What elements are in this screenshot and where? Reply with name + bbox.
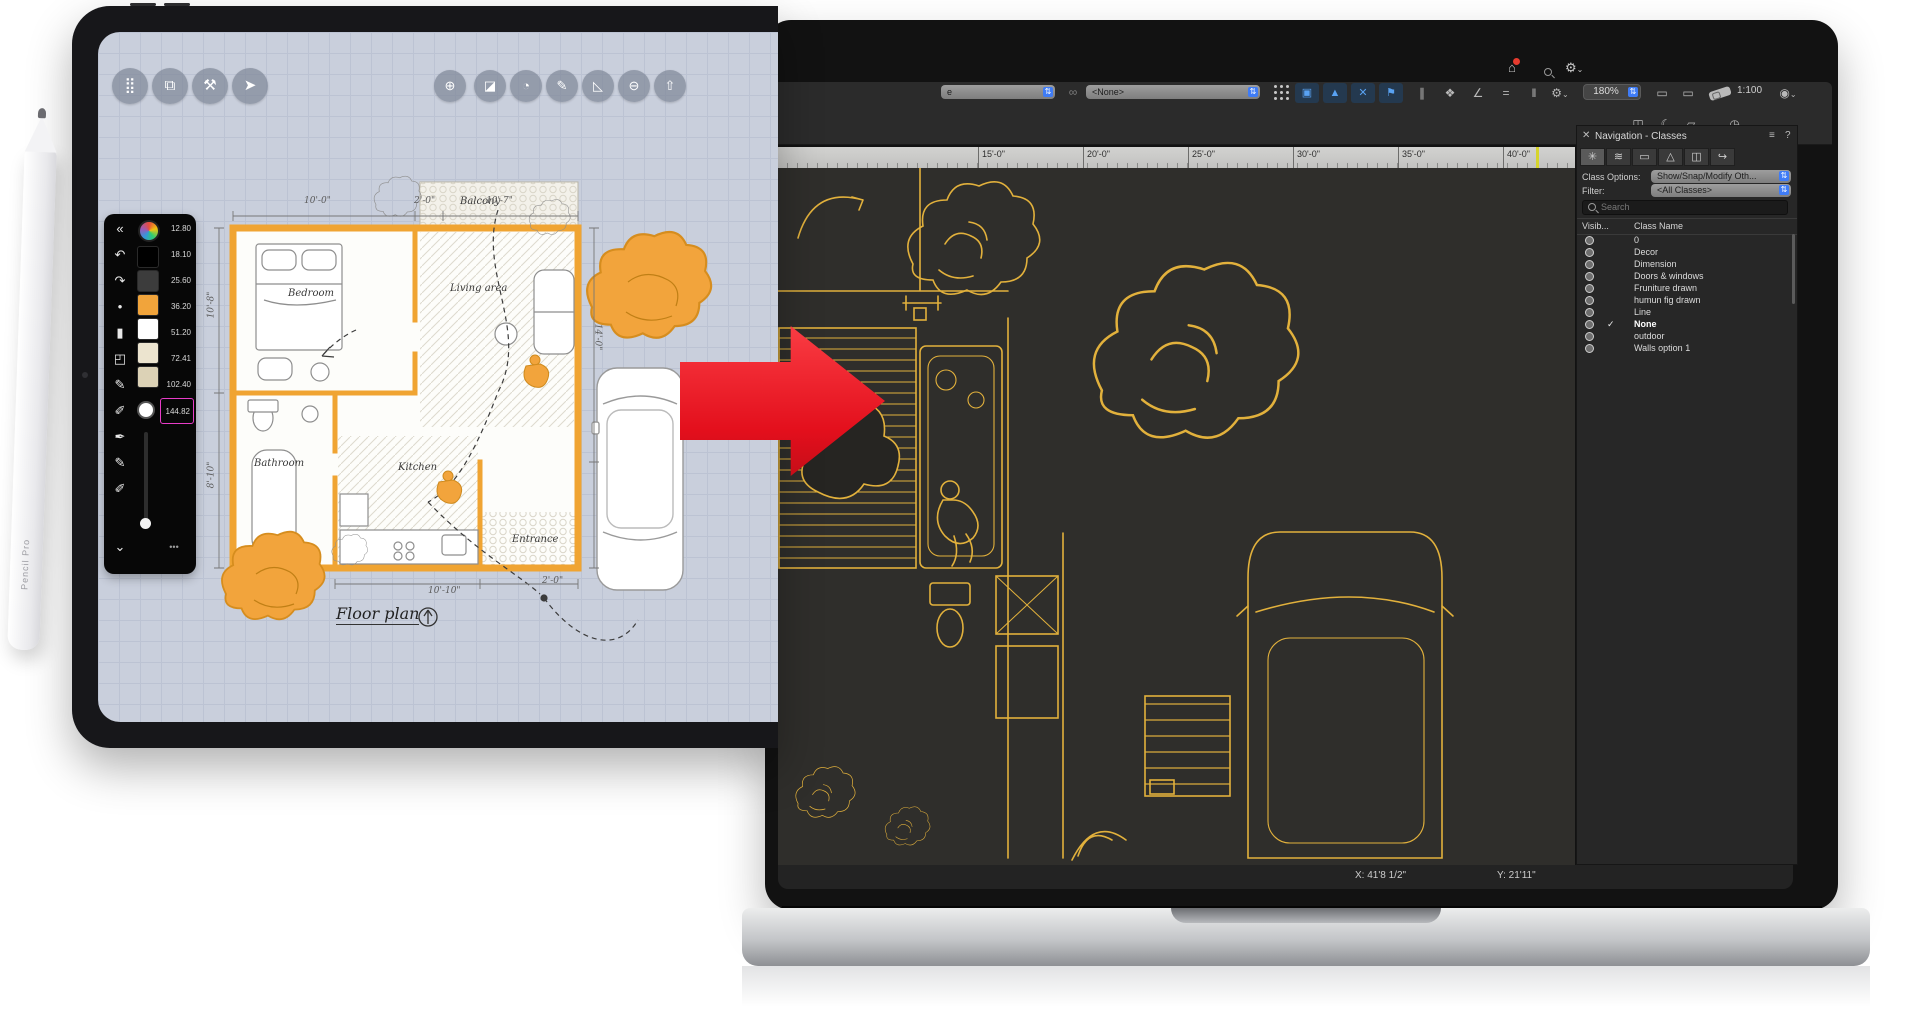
stepper-icon[interactable]: ⇅ xyxy=(1248,87,1258,97)
more-icon[interactable]: ••• xyxy=(160,534,188,560)
size-preset[interactable]: 25.60 xyxy=(160,268,194,294)
stepper-icon[interactable]: ⇅ xyxy=(1043,87,1053,97)
swatch-grey[interactable] xyxy=(137,270,159,292)
filter-label: Filter: xyxy=(1582,186,1605,196)
cad-floorplan-drawing xyxy=(778,168,1575,865)
class-row[interactable]: outdoor xyxy=(1577,330,1797,342)
class-row[interactable]: Walls option 1 xyxy=(1577,342,1797,354)
class-row[interactable]: Decor xyxy=(1577,246,1797,258)
floorplan-sketch xyxy=(98,32,778,722)
panel-menu-icon[interactable]: ≡ xyxy=(1769,130,1775,142)
active-color-indicator[interactable] xyxy=(139,403,153,417)
class-options-dropdown[interactable]: Show/Snap/Modify Oth...⇅ xyxy=(1651,170,1791,183)
visibility-dot-icon[interactable] xyxy=(1585,320,1594,329)
ipad-device: ⣿ ⧉ ⚒ ➤ ⊕ ◪ ◔ ✎ ◺ ⊖ ⇧ « ↶ ↷ • ▮ ◰ ✎ ✐ xyxy=(72,6,778,748)
class-row[interactable]: Doors & windows xyxy=(1577,270,1797,282)
search-placeholder: Search xyxy=(1601,202,1630,212)
close-icon[interactable]: ✕ xyxy=(1582,130,1590,142)
tab-classes[interactable]: ✳ xyxy=(1580,148,1605,166)
search-icon[interactable] xyxy=(1539,62,1547,78)
tab-references[interactable]: ↪ xyxy=(1710,148,1735,166)
airbrush-tool[interactable]: ✐ xyxy=(106,476,134,502)
class-row-active[interactable]: ✓None xyxy=(1577,318,1797,330)
visibility-dot-icon[interactable] xyxy=(1585,344,1594,353)
size-preset-active[interactable]: 144.82 xyxy=(160,398,194,424)
drawing-scale-value[interactable]: 1:100 xyxy=(1737,85,1762,96)
cursor-x-coordinate: X: 41'8 1/2" xyxy=(1355,870,1406,881)
swatch-beige[interactable] xyxy=(137,366,159,388)
macbook-reflection xyxy=(742,966,1870,1011)
tools-button[interactable]: ⚒ xyxy=(192,68,228,104)
visibility-dot-icon[interactable] xyxy=(1585,284,1594,293)
swatch-white[interactable] xyxy=(137,318,159,340)
tool-palette: « ↶ ↷ • ▮ ◰ ✎ ✐ ✒ ✎ ✐ ⌄ xyxy=(104,214,196,574)
front-camera xyxy=(82,372,88,378)
tab-viewports[interactable]: △ xyxy=(1658,148,1683,166)
angle-snap-icon[interactable]: ∠ xyxy=(1467,83,1489,103)
color-wheel-icon[interactable] xyxy=(138,220,160,242)
help-icon[interactable]: ? xyxy=(1785,130,1791,142)
swatch-cream[interactable] xyxy=(137,342,159,364)
marker-tool[interactable]: ✎ xyxy=(106,450,134,476)
class-list: 0 Decor Dimension Doors & windows Frunit… xyxy=(1577,234,1797,354)
dimension-label: 2'-0" xyxy=(414,196,435,206)
eraser-tool[interactable]: ◰ xyxy=(106,346,134,372)
macbook-lid-notch xyxy=(1171,908,1441,923)
attribute-dropdown[interactable]: e⇅ xyxy=(941,85,1055,99)
notification-badge xyxy=(1513,58,1520,65)
size-preset[interactable]: 72.41 xyxy=(160,346,194,372)
swatch-orange[interactable] xyxy=(137,294,159,316)
room-label: Living area xyxy=(450,283,507,294)
ink-tool[interactable]: ✒ xyxy=(106,424,134,450)
cad-drawing-area[interactable] xyxy=(778,168,1575,865)
room-label: Bathroom xyxy=(254,458,304,469)
triangle-ruler-button[interactable]: ◺ xyxy=(582,70,614,102)
dimension-label: 10'-8" xyxy=(206,292,216,319)
pen-tool[interactable]: ✎ xyxy=(106,372,134,398)
snap-to-intersection-button[interactable]: ✕ xyxy=(1351,83,1375,103)
dash-style-icon[interactable]: = xyxy=(1495,83,1517,103)
duplicate-button[interactable]: ⧉ xyxy=(152,68,188,104)
class-row[interactable]: 0 xyxy=(1577,234,1797,246)
visibility-dot-icon[interactable] xyxy=(1585,296,1594,305)
visibility-dot-icon[interactable] xyxy=(1585,308,1594,317)
tab-saved-views[interactable]: ◫ xyxy=(1684,148,1709,166)
snap-to-edge-button[interactable]: ⚑ xyxy=(1379,83,1403,103)
size-preset[interactable]: 12.80 xyxy=(160,216,194,242)
mac-menubar: ⌂ ⚙⌄ xyxy=(765,58,1838,82)
dimension-label: 14'-0" xyxy=(592,324,602,351)
class-row[interactable]: Fruniture drawn xyxy=(1577,282,1797,294)
precision-button[interactable]: ⊕ xyxy=(434,70,466,102)
mapping-icon[interactable]: ∞ xyxy=(1062,82,1084,102)
visibility-dot-icon[interactable] xyxy=(1585,260,1594,269)
class-row[interactable]: Dimension xyxy=(1577,258,1797,270)
size-preset[interactable]: 102.40 xyxy=(160,372,194,398)
mask-button[interactable]: ◪ xyxy=(474,70,506,102)
status-bar: X: 41'8 1/2" Y: 21'11" xyxy=(778,865,1793,889)
share-button[interactable]: ⇧ xyxy=(654,70,686,102)
size-preset[interactable]: 51.20 xyxy=(160,320,194,346)
size-preset[interactable]: 36.20 xyxy=(160,294,194,320)
dot-tool[interactable]: • xyxy=(106,294,134,320)
pen-button[interactable]: ✎ xyxy=(546,70,578,102)
redo-button[interactable]: ↷ xyxy=(106,268,134,294)
class-row[interactable]: humun fig drawn xyxy=(1577,294,1797,306)
snap-to-object-button[interactable]: ▣ xyxy=(1295,83,1319,103)
dimension-label: 10'-0" xyxy=(304,196,331,206)
sketch-app-screen[interactable]: ⣿ ⧉ ⚒ ➤ ⊕ ◪ ◔ ✎ ◺ ⊖ ⇧ « ↶ ↷ • ▮ ◰ ✎ ✐ xyxy=(98,32,778,722)
navigation-classes-panel: ✕ Navigation - Classes ≡ ? ✳ ≋ ▭ △ ◫ ↪ C… xyxy=(1576,125,1798,865)
none-dropdown[interactable]: <None>⇅ xyxy=(1086,85,1260,99)
horizontal-ruler: 15'-0" 20'-0" 25'-0" 30'-0" 35'-0" 40'-0… xyxy=(778,147,1575,169)
visibility-dot-icon[interactable] xyxy=(1585,332,1594,341)
gear-icon[interactable]: ⚙⌄ xyxy=(1565,60,1583,78)
volume-button xyxy=(130,3,156,6)
pencil-label: Pencil Pro xyxy=(19,539,31,590)
cursor-y-coordinate: Y: 21'11" xyxy=(1497,870,1536,881)
dimension-label: 10'-7" xyxy=(486,196,513,206)
filter-dropdown[interactable]: <All Classes>⇅ xyxy=(1651,184,1791,197)
swatch-black[interactable] xyxy=(137,246,159,268)
panel-title: Navigation - Classes xyxy=(1595,131,1687,142)
fit-objects-icon[interactable]: ▭ xyxy=(1677,83,1699,103)
dimension-label: 8'-10" xyxy=(206,462,216,489)
canvas-grid-button[interactable]: ⣿ xyxy=(112,68,148,104)
macbook-screen: ⌂ ⚙⌄ e⇅ ∞ <None>⇅ ▣ ▲ ✕ ⚑ ∥ ❖ ∠ = ‖ ⚙⌄ xyxy=(765,20,1838,910)
visibility-dot-icon[interactable] xyxy=(1585,236,1594,245)
class-search-input[interactable]: Search xyxy=(1582,200,1788,215)
scale-tape-icon xyxy=(1708,86,1732,101)
stepper-icon[interactable]: ⇅ xyxy=(1628,87,1638,97)
ruler-cursor-marker xyxy=(1536,147,1539,168)
pencil-tip xyxy=(38,108,46,118)
volume-button xyxy=(164,3,190,6)
class-row[interactable]: Line xyxy=(1577,306,1797,318)
zoom-level-dropdown[interactable]: 180%⇅ xyxy=(1583,84,1641,100)
room-label: Bedroom xyxy=(288,288,334,299)
room-label: Entrance xyxy=(512,534,558,545)
snap-loupe-icon[interactable]: ∥ xyxy=(1411,83,1433,103)
home-icon[interactable]: ⌂ xyxy=(1508,60,1516,76)
size-slider-knob[interactable] xyxy=(140,518,151,529)
dimension-label: 10'-10" xyxy=(428,586,461,596)
collapse-icon[interactable]: « xyxy=(106,216,134,242)
class-options-label: Class Options: xyxy=(1582,172,1641,182)
fit-page-icon[interactable]: ▭ xyxy=(1651,83,1673,103)
search-icon xyxy=(1588,203,1596,211)
settings-gear-icon[interactable]: ⚙⌄ xyxy=(1549,83,1571,103)
remove-button[interactable]: ⊖ xyxy=(618,70,650,102)
snap-grid-icon[interactable] xyxy=(1274,85,1289,100)
visibility-dot-icon[interactable] xyxy=(1585,248,1594,257)
class-table-header: Visib... Class Name xyxy=(1577,218,1797,235)
apple-pencil: Pencil Pro xyxy=(7,150,56,651)
macbook-base xyxy=(742,908,1870,966)
panel-scrollbar[interactable] xyxy=(1792,234,1795,304)
tab-design-layers[interactable]: ≋ xyxy=(1606,148,1631,166)
visibility-dot-icon[interactable] xyxy=(1585,272,1594,281)
pause-icon[interactable]: ‖ xyxy=(1523,83,1545,103)
pencil-tool[interactable]: ✐ xyxy=(106,398,134,424)
chevron-down-icon[interactable]: ⌄ xyxy=(106,534,134,560)
dimension-label: 2'-0" xyxy=(542,576,563,586)
undo-button[interactable]: ↶ xyxy=(106,242,134,268)
room-label: Kitchen xyxy=(398,462,437,473)
tab-sheet-layers[interactable]: ▭ xyxy=(1632,148,1657,166)
size-slider[interactable] xyxy=(144,432,148,528)
plan-title: Floor plan xyxy=(336,604,419,625)
composite-scene: ⌂ ⚙⌄ e⇅ ∞ <None>⇅ ▣ ▲ ✕ ⚑ ∥ ❖ ∠ = ‖ ⚙⌄ xyxy=(0,0,1920,1011)
fill-tool[interactable]: ▮ xyxy=(106,320,134,346)
size-preset[interactable]: 18.10 xyxy=(160,242,194,268)
brush-button[interactable]: ➤ xyxy=(232,68,268,104)
attributes-icon[interactable]: ❖ xyxy=(1439,83,1461,103)
protractor-button[interactable]: ◔ xyxy=(510,70,542,102)
visibility-eye-icon[interactable]: ◉⌄ xyxy=(1777,83,1799,103)
snap-to-angle-button[interactable]: ▲ xyxy=(1323,83,1347,103)
checkmark-icon: ✓ xyxy=(1607,318,1615,330)
pencil-cone xyxy=(25,116,58,153)
